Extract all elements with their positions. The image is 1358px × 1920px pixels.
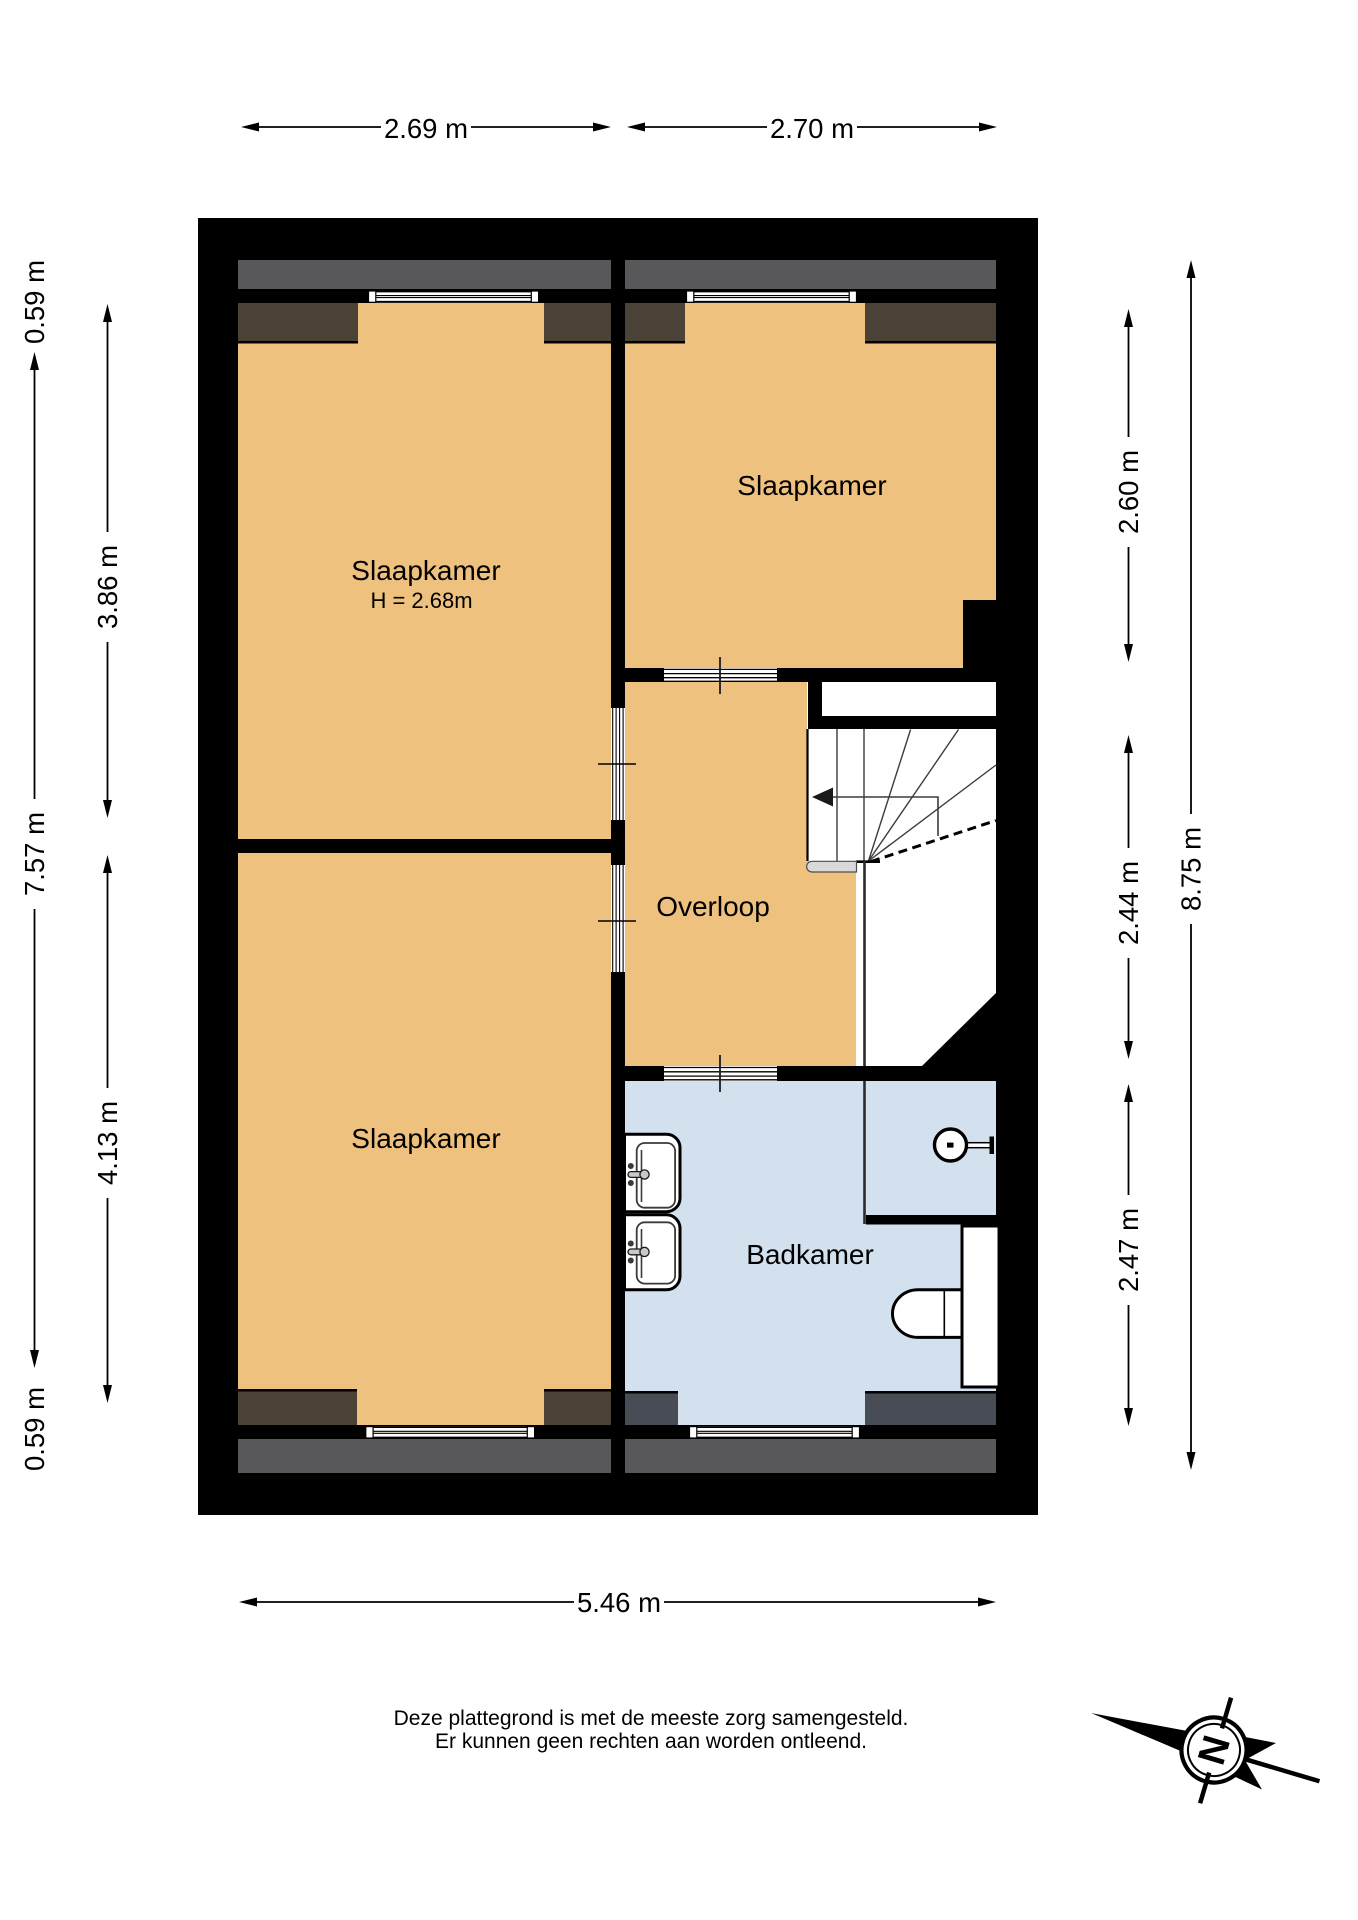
svg-text:Slaapkamer: Slaapkamer — [351, 555, 500, 586]
svg-text:4.13 m: 4.13 m — [92, 1101, 123, 1185]
svg-text:3.86 m: 3.86 m — [92, 545, 123, 629]
svg-text:5.46 m: 5.46 m — [577, 1587, 661, 1618]
svg-text:2.60 m: 2.60 m — [1113, 450, 1144, 534]
svg-text:Er kunnen geen rechten aan wor: Er kunnen geen rechten aan worden ontlee… — [435, 1730, 867, 1753]
svg-text:2.47 m: 2.47 m — [1113, 1208, 1144, 1292]
svg-text:0.59 m: 0.59 m — [19, 260, 50, 344]
svg-text:Deze plattegrond is met de mee: Deze plattegrond is met de meeste zorg s… — [394, 1707, 909, 1730]
svg-text:Slaapkamer: Slaapkamer — [351, 1123, 500, 1154]
svg-text:8.75 m: 8.75 m — [1176, 827, 1207, 911]
svg-text:Badkamer: Badkamer — [746, 1239, 874, 1270]
svg-text:2.44 m: 2.44 m — [1113, 861, 1144, 945]
svg-text:2.70 m: 2.70 m — [770, 113, 854, 144]
svg-text:0.59 m: 0.59 m — [19, 1387, 50, 1471]
svg-text:7.57 m: 7.57 m — [19, 812, 50, 896]
svg-text:2.69 m: 2.69 m — [384, 113, 468, 144]
svg-text:Slaapkamer: Slaapkamer — [737, 470, 886, 501]
svg-text:H = 2.68m: H = 2.68m — [370, 588, 472, 613]
svg-text:Overloop: Overloop — [656, 891, 770, 922]
